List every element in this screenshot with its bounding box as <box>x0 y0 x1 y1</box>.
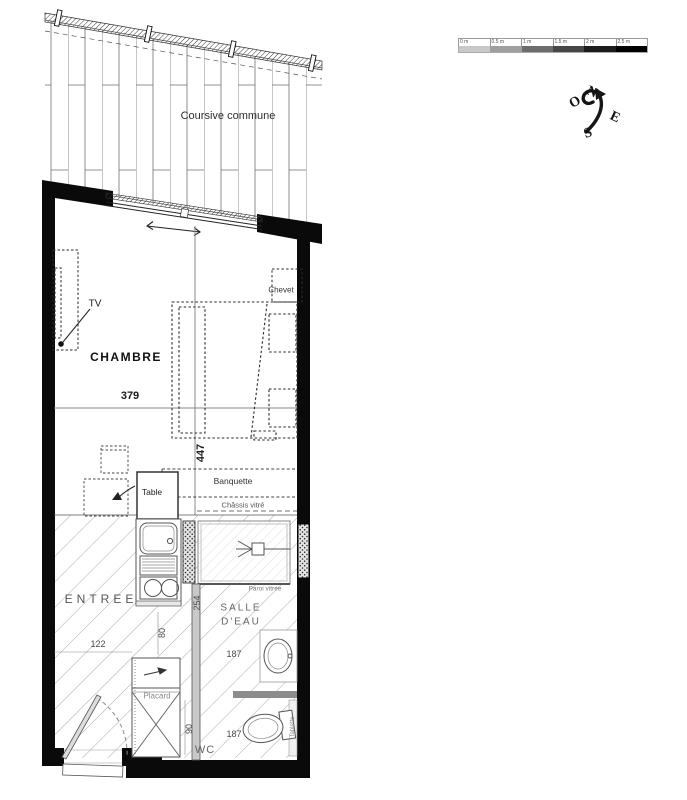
scale-segment <box>616 46 647 52</box>
shelf-bar <box>233 691 297 698</box>
scale-label: 0 m <box>459 39 490 46</box>
wall-duct <box>298 524 309 578</box>
scale-bar: 0 m 0.5 m 1 m 1.5 m 2 m 2.5 m <box>458 38 648 53</box>
floor-plan-drawing: N O E S <box>0 0 687 800</box>
shower <box>198 521 290 584</box>
kitchenette <box>136 519 181 606</box>
scale-segment <box>459 46 490 52</box>
scale-label: 2.5 m <box>616 39 648 46</box>
scale-segment <box>490 46 521 52</box>
compass-icon: N O E S <box>567 84 622 142</box>
kitchen-duct <box>183 521 195 583</box>
scale-segment <box>522 46 553 52</box>
scale-label: 1 m <box>521 39 553 46</box>
scale-bar-segments <box>458 46 648 53</box>
scale-label: 0.5 m <box>490 39 522 46</box>
washbasin <box>260 630 297 682</box>
scale-label: 2 m <box>584 39 616 46</box>
scale-segment <box>553 46 584 52</box>
scale-label: 1.5 m <box>553 39 585 46</box>
scale-bar-labels: 0 m 0.5 m 1 m 1.5 m 2 m 2.5 m <box>458 38 648 46</box>
placard-closet <box>132 658 180 757</box>
partition-wall <box>192 584 200 760</box>
scale-segment <box>584 46 615 52</box>
compass-east-label: E <box>607 109 622 127</box>
compass-west-label: O <box>567 93 584 111</box>
floorplan-canvas: N O E S 0 m 0.5 m 1 m 1.5 m 2 m 2.5 m Co… <box>0 0 687 800</box>
